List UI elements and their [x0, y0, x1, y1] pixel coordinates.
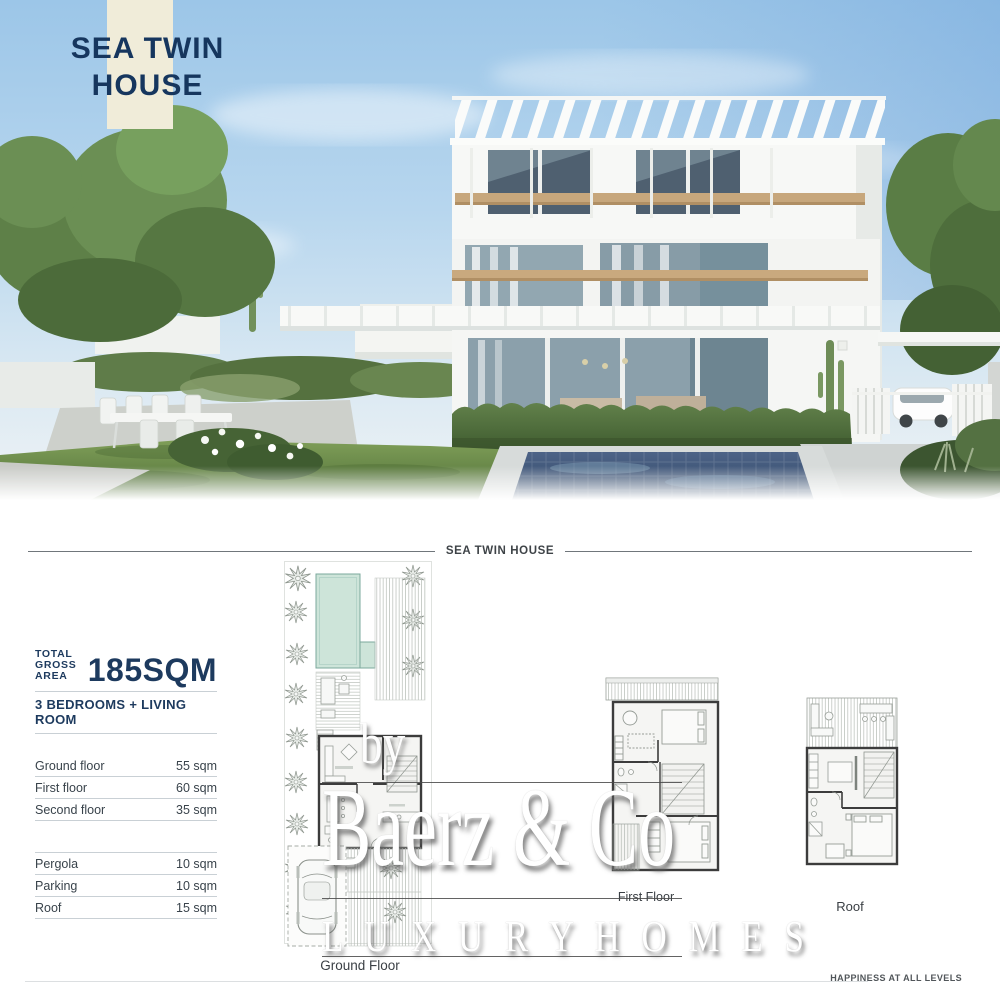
watermark-rule-top: [322, 782, 682, 783]
page-title: SEA TWIN HOUSE: [45, 30, 250, 104]
plan-balcony: [613, 824, 639, 870]
page-title-line2: HOUSE: [45, 67, 250, 104]
watermark-rule-bottom: [322, 956, 682, 957]
plan-stairs: [387, 756, 417, 792]
area-row-label: Pergola: [35, 857, 78, 871]
watermark-rule-middle: [322, 898, 682, 899]
area-row-label: Second floor: [35, 803, 105, 817]
divider-rule-right: [565, 551, 972, 552]
total-gross-area-value: 185SQM: [88, 655, 217, 685]
area-row: Parking 10 sqm: [35, 875, 217, 897]
hedge: [452, 403, 852, 452]
balcony-beam: [452, 270, 868, 278]
area-row-value: 10 sqm: [176, 857, 217, 871]
cloud: [210, 89, 490, 141]
floorplan-roof: [802, 696, 902, 881]
area-row-value: 55 sqm: [176, 759, 217, 773]
roof-pergola-slats: [455, 98, 885, 140]
area-row-value: 10 sqm: [176, 879, 217, 893]
area-row: Second floor 35 sqm: [35, 799, 217, 821]
area-row-label: First floor: [35, 781, 87, 795]
area-row: First floor 60 sqm: [35, 777, 217, 799]
area-row-label: Parking: [35, 879, 77, 893]
plan-pool: [316, 574, 360, 668]
brochure-page: SEA TWIN HOUSE SEA TWIN HOUSE TOTAL GROS…: [0, 0, 1000, 1000]
plan-stairs-roof: [864, 752, 894, 798]
floorplan-ground-label: Ground Floor: [290, 958, 430, 973]
configuration-label: 3 BEDROOMS + LIVING ROOM: [35, 692, 217, 734]
garden-wall: [0, 362, 95, 408]
footer-rule: [25, 981, 868, 982]
page-title-line1: SEA TWIN: [45, 30, 250, 67]
area-table: Ground floor 55 sqm First floor 60 sqm S…: [35, 755, 217, 919]
area-summary-panel: TOTAL GROSS AREA 185SQM 3 BEDROOMS + LIV…: [35, 649, 217, 919]
total-gross-area-label: TOTAL GROSS AREA: [35, 649, 79, 685]
area-row-value: 15 sqm: [176, 901, 217, 915]
area-row-label: Roof: [35, 901, 61, 915]
area-row: Ground floor 55 sqm: [35, 755, 217, 777]
area-row: Pergola 10 sqm: [35, 853, 217, 875]
area-row-value: 35 sqm: [176, 803, 217, 817]
section-divider: SEA TWIN HOUSE: [28, 545, 972, 557]
total-gross-area: TOTAL GROSS AREA 185SQM: [35, 649, 217, 692]
area-table-spacer: [35, 821, 217, 853]
plan-stairs-first: [662, 764, 704, 814]
plan-car: [297, 860, 338, 934]
area-row: Roof 15 sqm: [35, 897, 217, 919]
divider-rule-left: [28, 551, 435, 552]
area-row-label: Ground floor: [35, 759, 104, 773]
section-heading: SEA TWIN HOUSE: [446, 545, 554, 557]
area-row-value: 60 sqm: [176, 781, 217, 795]
floorplan-first-label: First Floor: [582, 890, 710, 904]
floorplan-roof-label: Roof: [800, 899, 900, 914]
footer-tagline: HAPPINESS AT ALL LEVELS: [830, 973, 962, 983]
